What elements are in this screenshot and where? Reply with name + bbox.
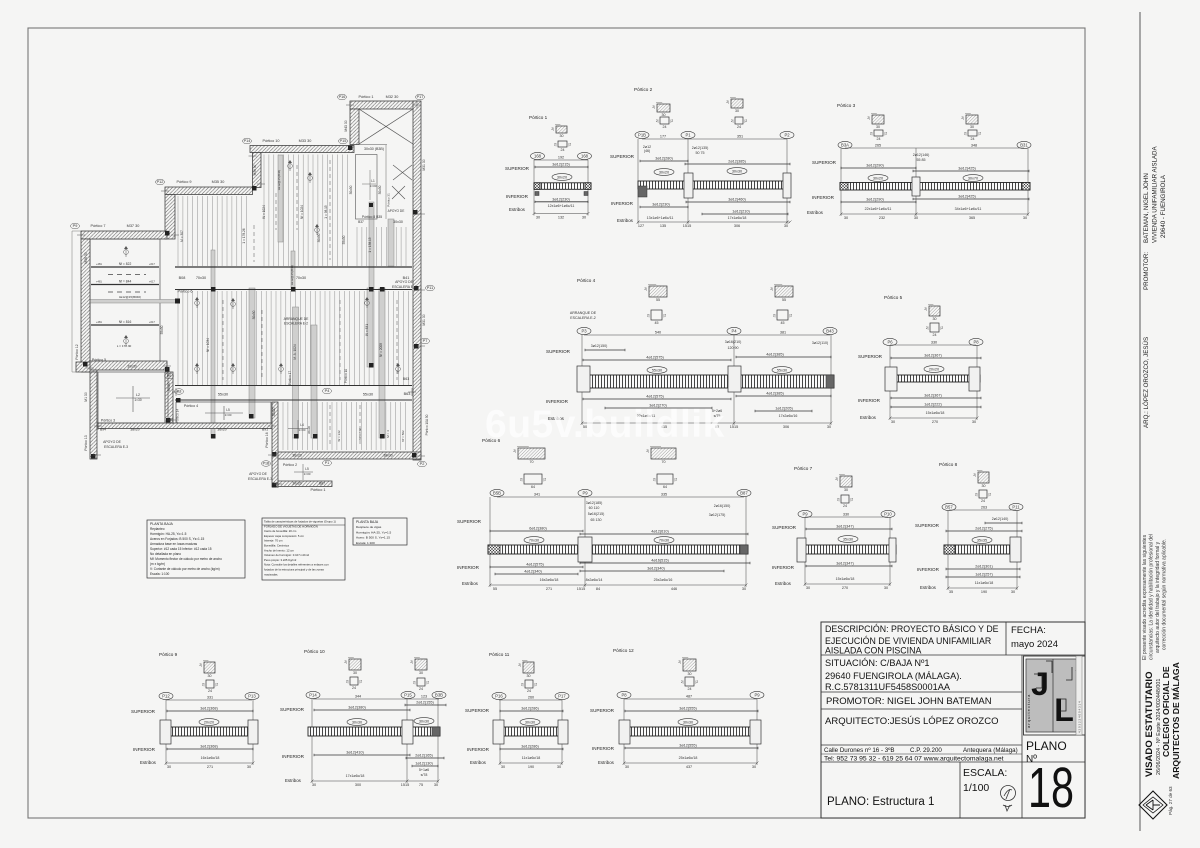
- svg-text:3ø12@15(B#46): 3ø12@15(B#46): [119, 295, 141, 299]
- svg-text:15x1ø6c/18: 15x1ø6c/18: [926, 411, 945, 415]
- svg-text:V: Cortante de cálculo por met: V: Cortante de cálculo por metro de anch…: [150, 567, 220, 571]
- svg-text:APOYO DE: APOYO DE: [249, 472, 267, 476]
- svg-text:B87: B87: [740, 491, 748, 496]
- svg-text:30: 30: [884, 586, 888, 590]
- svg-text:2|: 2|: [652, 105, 655, 109]
- svg-text:3ø12(367): 3ø12(367): [924, 394, 942, 398]
- svg-text:INFERIOR: INFERIOR: [592, 746, 615, 751]
- svg-text:R.C.5781311UF5458S0001AA: R.C.5781311UF5458S0001AA: [825, 682, 951, 692]
- svg-text:30: 30: [970, 125, 974, 129]
- svg-text:+617: +617: [149, 262, 155, 266]
- svg-text:30: 30: [167, 765, 171, 769]
- svg-text:P1: P1: [685, 133, 691, 138]
- svg-text:P4: P4: [731, 329, 737, 334]
- svg-text:INFERIOR: INFERIOR: [133, 747, 156, 752]
- svg-text:Pórtico 2: Pórtico 2: [634, 87, 653, 92]
- svg-text:2ø12(140): 2ø12(140): [992, 517, 1009, 521]
- svg-text:L1: L1: [371, 179, 375, 183]
- svg-text:135: 135: [660, 224, 666, 228]
- svg-text:30x30: 30x30: [352, 721, 362, 725]
- svg-text:1 = 138.15: 1 = 138.15: [368, 237, 372, 252]
- svg-text:29640 FUENGIROLA (MÁLAGA).: 29640 FUENGIROLA (MÁLAGA).: [825, 671, 962, 681]
- svg-text:Nf = 844: Nf = 844: [119, 280, 132, 284]
- svg-text:168: 168: [581, 154, 589, 159]
- svg-text:P9: P9: [582, 491, 588, 496]
- svg-text:+481: +481: [96, 320, 102, 324]
- svg-text:B37: B37: [358, 220, 364, 224]
- svg-text:24: 24: [663, 125, 667, 129]
- svg-text:2|: 2|: [678, 660, 681, 664]
- svg-text:B43: B43: [826, 329, 834, 334]
- svg-text:Intereje: 70 cm: Intereje: 70 cm: [264, 539, 283, 543]
- svg-text:4 2 0 3 2 2 4 0 0 4 3 1 4: 4 2 0 3 2 2 4 0 0 4 3 1 4: [1078, 701, 1082, 733]
- svg-text:365: 365: [969, 216, 975, 220]
- svg-text:PLANTA BAJA: PLANTA BAJA: [356, 520, 379, 524]
- svg-text:Acero: B 500 S, Ys=1.15: Acero: B 500 S, Ys=1.15: [356, 536, 390, 540]
- svg-text:2|: 2|: [521, 683, 524, 687]
- svg-text:|2: |2: [675, 478, 678, 482]
- svg-text:30: 30: [876, 125, 880, 129]
- svg-text:3ø12@15(B46): 3ø12@15(B46): [277, 170, 281, 191]
- svg-text:Nf = 502: Nf = 502: [401, 430, 405, 442]
- svg-text:|2: |2: [535, 683, 538, 687]
- svg-text:2|: 2|: [413, 681, 416, 685]
- svg-text:Estribos: Estribos: [285, 778, 302, 783]
- svg-text:330: 330: [843, 513, 849, 517]
- svg-text:ESCALERA E-3: ESCALERA E-3: [248, 477, 272, 481]
- svg-text:Armadura base en losas macizas: Armadura base en losas macizas: [150, 542, 198, 546]
- svg-text:3ø12(368): 3ø12(368): [200, 707, 218, 711]
- svg-text:55x30: 55x30: [160, 325, 164, 334]
- svg-text:70x30: 70x30: [659, 539, 669, 543]
- svg-text:64: 64: [531, 485, 535, 489]
- svg-text:INFERIOR: INFERIOR: [506, 194, 529, 199]
- svg-text:Nf = 1024: Nf = 1024: [300, 205, 304, 219]
- svg-text:331: 331: [207, 696, 213, 700]
- svg-text:30: 30: [982, 484, 986, 488]
- svg-text:s/78: s/78: [421, 773, 428, 777]
- svg-text:190: 190: [528, 765, 534, 769]
- svg-text:168: 168: [534, 154, 542, 159]
- svg-text:265: 265: [875, 144, 881, 148]
- svg-text:13x1ø6+1ø6c/11: 13x1ø6+1ø6c/11: [647, 216, 674, 220]
- svg-text:3ø12(290): 3ø12(290): [866, 164, 884, 168]
- svg-text:70x30: 70x30: [529, 539, 539, 543]
- svg-text:2|: 2|: [346, 680, 349, 684]
- svg-text:2|: 2|: [926, 326, 929, 330]
- svg-text:3ø12(110): 3ø12(110): [812, 341, 828, 345]
- svg-text:Pórtico 4: Pórtico 4: [577, 278, 596, 283]
- svg-text:Pórtico 5: Pórtico 5: [92, 358, 106, 362]
- svg-text:2|: 2|: [870, 132, 873, 136]
- svg-text:P3: P3: [581, 329, 587, 334]
- svg-text:Nf = 1034: Nf = 1034: [206, 338, 210, 352]
- svg-text:PLANTA BAJA: PLANTA BAJA: [150, 522, 174, 526]
- svg-text:P14: P14: [309, 693, 317, 698]
- svg-text:271: 271: [546, 587, 552, 591]
- svg-text:B3B: B3B: [435, 693, 443, 698]
- svg-text:270: 270: [842, 586, 848, 590]
- svg-text:Hormigón: HA-25, Yc=1.5: Hormigón: HA-25, Yc=1.5: [150, 532, 187, 536]
- svg-text:55x30: 55x30: [363, 393, 373, 397]
- svg-text:35x30: 35x30: [843, 538, 853, 542]
- svg-text:24: 24: [843, 504, 847, 508]
- svg-text:1515: 1515: [401, 783, 409, 787]
- svg-text:Pórtico 14: Pórtico 14: [176, 409, 180, 424]
- svg-text:SUPERIOR: SUPERIOR: [610, 154, 635, 159]
- svg-text:B91: B91: [262, 428, 268, 432]
- svg-text:38x20: 38x20: [130, 428, 139, 432]
- svg-text:Ancho del nervio: 12 cm: Ancho del nervio: 12 cm: [264, 548, 295, 552]
- svg-text:55x30: 55x30: [652, 369, 662, 373]
- svg-text:Estribos: Estribos: [860, 415, 877, 420]
- svg-text:30: 30: [662, 113, 666, 117]
- svg-text:Pórtico 7: Pórtico 7: [794, 466, 813, 471]
- svg-text:1ø12(210): 1ø12(210): [732, 210, 750, 214]
- svg-text:Volumen de hormigón: 0.107 m3/: Volumen de hormigón: 0.107 m3/m2: [264, 553, 310, 557]
- svg-text:3ø12(215): 3ø12(215): [552, 163, 570, 167]
- svg-text:2|: 2|: [513, 449, 516, 453]
- svg-text:3ø12(367): 3ø12(367): [924, 354, 942, 358]
- svg-text:2|: 2|: [647, 314, 650, 318]
- svg-text:2|: 2|: [518, 663, 521, 667]
- svg-text:ESCALERA E-3: ESCALERA E-3: [104, 445, 128, 449]
- svg-text:35x35: 35x35: [977, 539, 987, 543]
- svg-text:1 = 178.26: 1 = 178.26: [242, 228, 246, 243]
- svg-text:Pórtico 7: Pórtico 7: [91, 224, 106, 228]
- svg-text:INFERIOR: INFERIOR: [611, 201, 634, 206]
- svg-text:3ø12(340): 3ø12(340): [647, 567, 665, 571]
- svg-text:30: 30: [527, 674, 531, 678]
- svg-text:M56 30: M56 30: [253, 164, 257, 175]
- svg-text:5ø16(215): 5ø16(215): [588, 512, 605, 516]
- svg-text:No detallada en plano: No detallada en plano: [150, 552, 181, 556]
- svg-text:1=30: 1=30: [225, 413, 232, 417]
- svg-text:M31 30: M31 30: [422, 314, 426, 325]
- svg-text:B63: B63: [403, 377, 409, 381]
- svg-text:M43 30: M43 30: [344, 120, 348, 131]
- svg-text:348: 348: [971, 144, 977, 148]
- svg-text:2|: 2|: [653, 478, 656, 482]
- svg-text:30x30: 30x30: [378, 185, 382, 194]
- svg-text:381: 381: [780, 331, 786, 335]
- svg-text:B31: B31: [1020, 143, 1028, 148]
- svg-text:|2: |2: [885, 132, 888, 136]
- svg-text:2|: 2|: [681, 680, 684, 684]
- svg-text:30: 30: [827, 425, 831, 429]
- svg-text:3ø12(185): 3ø12(185): [586, 501, 603, 505]
- svg-text:Pórtico 1: Pórtico 1: [359, 95, 374, 99]
- svg-text:1515: 1515: [683, 224, 691, 228]
- svg-text:+481: +481: [96, 280, 102, 284]
- svg-text:circunstancias: La identidad y: circunstancias: La identidad y habilitac…: [1149, 534, 1155, 660]
- svg-text:ARQUITECTO:JESÚS LÓPEZ OROZCO: ARQUITECTO:JESÚS LÓPEZ OROZCO: [825, 716, 999, 727]
- svg-text:APOYO DE: APOYO DE: [103, 440, 121, 444]
- svg-text:1=30: 1=30: [134, 398, 141, 402]
- svg-text:INFERIOR: INFERIOR: [467, 747, 490, 752]
- svg-text:Pórtico 10: Pórtico 10: [262, 139, 279, 143]
- svg-text:4ø16(515): 4ø16(515): [651, 559, 669, 563]
- svg-text:Canto de bovedilla: 20 cm: Canto de bovedilla: 20 cm: [264, 529, 297, 533]
- svg-text:3ø12@15(B45): 3ø12@15(B45): [290, 265, 294, 286]
- svg-text:30x30: 30x30: [393, 220, 403, 224]
- svg-text:Pórtico 4: Pórtico 4: [184, 404, 198, 408]
- svg-text:30x30 (B3B): 30x30 (B3B): [364, 147, 384, 151]
- svg-text:C.P. 29.200: C.P. 29.200: [910, 747, 942, 754]
- svg-text:30x20: 30x20: [272, 407, 276, 416]
- svg-text:P16: P16: [495, 694, 503, 699]
- svg-text:30: 30: [625, 765, 629, 769]
- svg-text:P1B: P1B: [263, 462, 270, 466]
- svg-text:|2: |2: [216, 683, 219, 687]
- svg-text:306: 306: [783, 425, 789, 429]
- svg-text:M = 4: M = 4: [386, 430, 390, 438]
- svg-text:P10: P10: [884, 512, 892, 517]
- svg-text:30: 30: [742, 587, 746, 591]
- svg-text:30: 30: [419, 671, 423, 675]
- svg-text:SUPERIOR: SUPERIOR: [590, 708, 615, 713]
- svg-text:30x20: 30x20: [292, 482, 301, 486]
- svg-text:30x20: 30x20: [873, 177, 883, 181]
- svg-text:4ø12(385): 4ø12(385): [766, 353, 784, 357]
- svg-text:B08: B08: [179, 276, 186, 280]
- svg-text:24: 24: [688, 687, 692, 691]
- svg-text:SITUACIÓN: C/BAJA Nº1: SITUACIÓN: C/BAJA Nº1: [825, 658, 929, 668]
- svg-text:INFERIOR: INFERIOR: [457, 565, 480, 570]
- svg-text:306: 306: [734, 224, 740, 228]
- svg-text:30: 30: [784, 224, 788, 228]
- svg-text:2ø12(385): 2ø12(385): [728, 160, 746, 164]
- svg-text:3ø12(425): 3ø12(425): [958, 167, 976, 171]
- svg-text:45: 45: [655, 321, 659, 325]
- svg-text:17x1ø6c/18: 17x1ø6c/18: [346, 774, 365, 778]
- svg-text:|2: |2: [360, 680, 363, 684]
- svg-text:4ø12(610): 4ø12(610): [651, 530, 669, 534]
- svg-text:|2: |2: [544, 478, 547, 482]
- svg-text:177: 177: [660, 135, 666, 139]
- svg-text:29640 - FUENGIROLA: 29640 - FUENGIROLA: [1160, 174, 1167, 238]
- svg-text:Pórtico 8: Pórtico 8: [939, 462, 958, 467]
- svg-text:3ø12(460): 3ø12(460): [728, 198, 746, 202]
- svg-text:16x2ø6c/18: 16x2ø6c/18: [540, 578, 559, 582]
- svg-text:L: L: [1054, 692, 1074, 728]
- svg-text:30x20: 30x20: [557, 176, 567, 180]
- svg-text:24: 24: [561, 148, 565, 152]
- svg-text:30: 30: [933, 317, 937, 321]
- svg-text:Pórtico 10: Pórtico 10: [344, 369, 348, 384]
- svg-text:34x1ø6+1ø6c/11: 34x1ø6+1ø6c/11: [955, 207, 982, 211]
- svg-text:+481: +481: [96, 262, 102, 266]
- svg-text:ESCALA:: ESCALA:: [963, 767, 1007, 779]
- svg-text:2|: 2|: [975, 493, 978, 497]
- svg-text:Estribos: Estribos: [140, 760, 157, 765]
- svg-text:INFERIOR: INFERIOR: [858, 398, 881, 403]
- svg-text:B3A: B3A: [841, 143, 849, 148]
- svg-text:263: 263: [981, 506, 987, 510]
- svg-text:1=30: 1=30: [299, 428, 306, 432]
- svg-text:P11: P11: [1012, 505, 1020, 510]
- svg-text:+617: +617: [149, 280, 155, 284]
- svg-text:270: 270: [932, 420, 938, 424]
- svg-text:J: J: [1031, 666, 1049, 702]
- svg-text:Pórtico 31: Pórtico 31: [387, 193, 391, 207]
- svg-text:3ø12(555): 3ø12(555): [679, 744, 697, 748]
- svg-text:70: 70: [662, 460, 666, 464]
- svg-text:M = 307: M = 307: [180, 230, 184, 242]
- svg-text:6ø12(380): 6ø12(380): [529, 527, 547, 531]
- svg-text:EJECUCIÓN DE VIVIENDA UNIFAMIL: EJECUCIÓN DE VIVIENDA UNIFAMILIAR: [825, 636, 991, 646]
- svg-text:P12: P12: [162, 694, 170, 699]
- svg-text:11x1ø6c/18: 11x1ø6c/18: [975, 581, 994, 585]
- svg-text:344: 344: [355, 695, 361, 699]
- svg-text:P2: P2: [784, 133, 790, 138]
- svg-text:AISLADA CON PISCINA: AISLADA CON PISCINA: [825, 646, 921, 656]
- svg-text:SUPERIOR: SUPERIOR: [131, 709, 156, 714]
- svg-text:30x30: 30x30: [127, 365, 136, 369]
- svg-text:P8: P8: [973, 340, 979, 345]
- svg-text:Pórtico 1: Pórtico 1: [529, 115, 548, 120]
- svg-text:24: 24: [737, 125, 741, 129]
- svg-text:Superior: #12 cada 15 Inferi: Superior: #12 cada 15 Inferior: #12 cada…: [150, 547, 212, 551]
- svg-text:ARRANQUE DE: ARRANQUE DE: [284, 317, 310, 321]
- svg-text:30: 30: [844, 216, 848, 220]
- svg-text:Pórtico 9: Pórtico 9: [177, 180, 192, 184]
- svg-text:Despiece de vigas: Despiece de vigas: [356, 525, 382, 529]
- svg-text:Espesor capa compresión: 5 cm: Espesor capa compresión: 5 cm: [264, 534, 305, 538]
- svg-text:Pág. 27 de 63: Pág. 27 de 63: [1168, 786, 1173, 815]
- svg-text:70x30: 70x30: [296, 276, 306, 280]
- svg-text:FECHA:: FECHA:: [1011, 625, 1046, 636]
- svg-text:437: 437: [686, 765, 692, 769]
- svg-text:P12: P12: [157, 180, 164, 184]
- svg-text:P1: P1: [325, 461, 329, 465]
- svg-text:190: 190: [981, 590, 987, 594]
- svg-text:30: 30: [536, 216, 540, 220]
- svg-text:Estribos: Estribos: [470, 760, 487, 765]
- svg-text:2|: 2|: [924, 307, 927, 311]
- svg-text:35: 35: [949, 590, 953, 594]
- svg-text:3ø12(290): 3ø12(290): [866, 198, 884, 202]
- svg-text:|2: |2: [790, 314, 793, 318]
- svg-text:ARQ.: LÓPEZ OROZCO, JESÚS: ARQ.: LÓPEZ OROZCO, JESÚS: [1143, 337, 1150, 428]
- svg-text:L5: L5: [226, 408, 230, 412]
- svg-text:1ø12(257): 1ø12(257): [975, 573, 993, 577]
- svg-text:18: 18: [1028, 756, 1074, 820]
- svg-text:W = 342: W = 342: [337, 430, 341, 442]
- svg-text:P14: P14: [244, 139, 251, 143]
- svg-text:Pórtico 2: Pórtico 2: [283, 463, 297, 467]
- svg-text:15x1ø6c/18: 15x1ø6c/18: [836, 577, 855, 581]
- svg-text:30x30: 30x30: [683, 721, 693, 725]
- svg-text:INFERIOR: INFERIOR: [772, 565, 795, 570]
- svg-text:Pórtico 10A 30: Pórtico 10A 30: [425, 414, 429, 435]
- svg-text:Nf = 2008: Nf = 2008: [379, 343, 383, 357]
- svg-text:ARQUITECTOS DE MÁLAGA: ARQUITECTOS DE MÁLAGA: [1171, 662, 1181, 779]
- svg-text:2|: 2|: [961, 116, 964, 120]
- svg-text:P17: P17: [417, 95, 424, 99]
- svg-text:24: 24: [933, 333, 937, 337]
- svg-text:2|: 2|: [964, 132, 967, 136]
- svg-text:Estribos: Estribos: [598, 760, 615, 765]
- svg-text:2|: 2|: [199, 663, 202, 667]
- svg-text:3ø12(230): 3ø12(230): [552, 197, 570, 201]
- svg-text:60 110: 60 110: [589, 506, 600, 510]
- svg-text:335: 335: [661, 493, 667, 497]
- svg-text:P3: P3: [177, 390, 182, 394]
- svg-text:El presente visado acredita ex: El presente visado acredita expresamente…: [1142, 534, 1148, 660]
- svg-text:30x20: 30x20: [167, 382, 171, 391]
- svg-text:341: 341: [534, 493, 540, 497]
- svg-text:2ø12(135): 2ø12(135): [692, 146, 709, 150]
- svg-text:2|: 2|: [867, 116, 870, 120]
- svg-text:8x2ø6c/14: 8x2ø6c/14: [586, 578, 603, 582]
- svg-text:Pórtico 10: Pórtico 10: [304, 649, 325, 654]
- svg-text:3ø12(347): 3ø12(347): [836, 525, 854, 529]
- svg-text:2|: 2|: [837, 498, 840, 502]
- svg-text:B57: B57: [945, 505, 953, 510]
- svg-text:SUPERIOR: SUPERIOR: [505, 166, 530, 171]
- svg-text:P9: P9: [802, 512, 808, 517]
- svg-text:487: 487: [686, 695, 692, 699]
- svg-text:1ø12(222): 1ø12(222): [924, 403, 942, 407]
- svg-text:M. A. 1024: M. A. 1024: [293, 344, 297, 359]
- svg-text:30x30: 30x30: [252, 310, 256, 319]
- svg-text:2|: 2|: [731, 119, 734, 123]
- svg-text:P6: P6: [887, 340, 893, 345]
- svg-text:|2: |2: [989, 493, 992, 497]
- svg-text:Aceros en Forjados: B 500 S, Y: Aceros en Forjados: B 500 S, Ys=1.15: [150, 537, 204, 541]
- svg-text:2ø12(275): 2ø12(275): [975, 527, 993, 531]
- svg-text:70: 70: [530, 460, 534, 464]
- svg-text:W = 831: W = 831: [365, 324, 369, 336]
- svg-text:P9: P9: [754, 693, 760, 698]
- svg-text:3ø12(347): 3ø12(347): [836, 562, 854, 566]
- svg-text:Estribos: Estribos: [617, 218, 634, 223]
- svg-text:B5B: B5B: [493, 491, 501, 496]
- svg-text:Pórtico 9: Pórtico 9: [159, 652, 178, 657]
- svg-text:P4: P4: [325, 389, 330, 393]
- svg-text:25x1ø6c/18: 25x1ø6c/18: [679, 756, 698, 760]
- svg-text:SUPERIOR: SUPERIOR: [772, 525, 797, 530]
- svg-text:24: 24: [208, 689, 212, 693]
- svg-text:30: 30: [353, 671, 357, 675]
- svg-text:ESCALERA E-2: ESCALERA E-2: [284, 322, 308, 326]
- svg-text:M36 30: M36 30: [84, 252, 88, 263]
- svg-text:PROMOTOR: NIGEL JOHN BATEMAN: PROMOTOR: NIGEL JOHN BATEMAN: [826, 696, 992, 707]
- svg-text:4ø12(340): 4ø12(340): [524, 570, 542, 574]
- svg-text:SUPERIOR: SUPERIOR: [546, 349, 571, 354]
- svg-text:2|: 2|: [551, 127, 554, 131]
- svg-text:Estribos: Estribos: [920, 585, 937, 590]
- svg-text:Estribos: Estribos: [807, 210, 824, 215]
- svg-text:17x2ø6c/16: 17x2ø6c/16: [779, 414, 798, 418]
- svg-text:forjados de la estructura prin: forjados de la estructura principal y de…: [264, 568, 324, 572]
- svg-text:Pórtico 13: Pórtico 13: [84, 435, 88, 450]
- svg-text:Pórtico 3: Pórtico 3: [837, 103, 856, 108]
- svg-text:1/100: 1/100: [963, 782, 989, 794]
- svg-text:VIVIENDA UNIFAMILIAR AISLADA: VIVIENDA UNIFAMILIAR AISLADA: [1152, 146, 1159, 243]
- svg-text:30x30: 30x30: [349, 185, 353, 194]
- svg-text:3ø12(368): 3ø12(368): [200, 745, 218, 749]
- svg-text:127: 127: [638, 224, 644, 228]
- svg-text:4ø12(385): 4ø12(385): [766, 392, 784, 396]
- svg-text:Pórtico 6: Pórtico 6: [178, 290, 193, 294]
- svg-text:192: 192: [558, 156, 564, 160]
- svg-text:Nf = 742: Nf = 742: [358, 428, 362, 440]
- svg-text:1 = 98.15: 1 = 98.15: [324, 205, 328, 219]
- svg-text:75: 75: [419, 783, 423, 787]
- svg-text:5+1ø6: 5+1ø6: [419, 768, 429, 772]
